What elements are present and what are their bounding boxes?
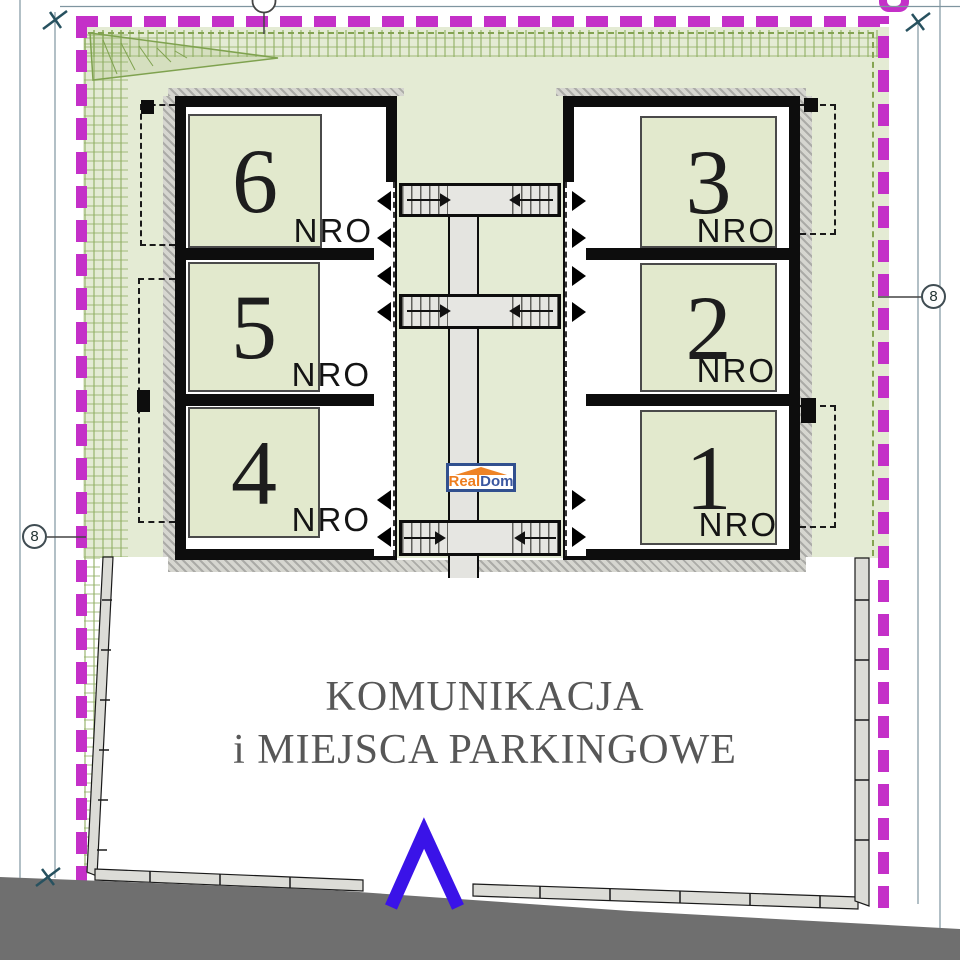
entrance-chevron-icon	[391, 833, 458, 907]
stair-arrow-icon	[404, 195, 556, 543]
axis-marker-left: 8	[22, 524, 47, 549]
survey-tick-icon	[36, 11, 930, 886]
axis-marker-right-label: 8	[929, 288, 937, 305]
slope-wedge	[90, 33, 278, 80]
wall-joints	[97, 600, 869, 908]
axis-marker-top-circle	[253, 0, 276, 13]
dimension-lines	[20, 0, 960, 928]
parking-wall-right	[855, 558, 869, 906]
parking-walls	[87, 557, 869, 909]
plan-overlay	[0, 0, 960, 960]
parking-wall-left	[87, 557, 113, 876]
axis-marker-left-label: 8	[30, 528, 38, 545]
axis-marker-right: 8	[921, 284, 946, 309]
marker-connectors	[47, 12, 922, 537]
